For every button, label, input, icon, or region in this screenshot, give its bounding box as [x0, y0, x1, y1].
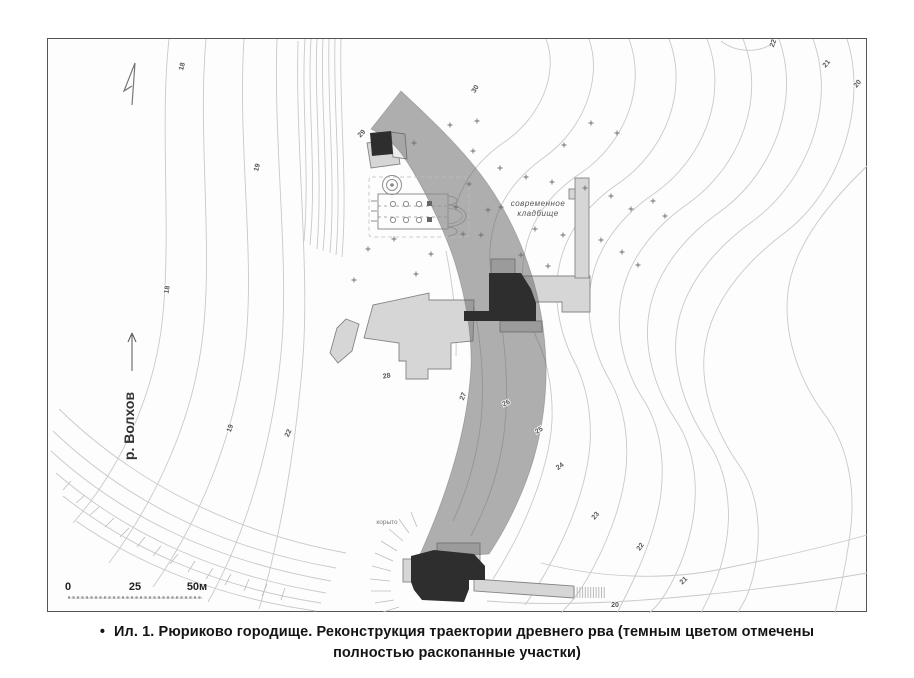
cemetery-strip: [575, 178, 589, 278]
contour-label: 19: [226, 424, 235, 434]
north-arrow-icon: [124, 63, 135, 105]
contour-label: 28: [382, 372, 391, 380]
contour-label: 22: [636, 542, 646, 552]
figure-caption: •Ил. 1. Рюриково городище. Реконструкция…: [0, 622, 914, 664]
caption-line1: •Ил. 1. Рюриково городище. Реконструкция…: [0, 622, 914, 643]
contour-label: 19: [253, 163, 262, 172]
contour-label: 18: [163, 285, 171, 294]
river-flow-arrow-icon: [128, 333, 136, 371]
contour-label: 24: [555, 462, 565, 472]
trench-strip-south: [474, 579, 574, 598]
scale-label-middle: 25: [129, 581, 141, 593]
trench-area-west: [330, 319, 359, 363]
river-label: р. Волхов: [121, 392, 137, 461]
contour-label: 22: [284, 428, 294, 438]
depression-label: корыто: [376, 519, 398, 526]
contour-label: 27: [459, 392, 468, 402]
cemetery-label-line1: современное: [511, 199, 566, 208]
scale-label-start: 0: [65, 581, 71, 593]
caption-bullet: •: [100, 624, 105, 640]
contour-label: 29: [357, 129, 368, 140]
contour-label: 18: [178, 62, 187, 71]
contour-label: 21: [679, 576, 690, 587]
trench-area-central: [364, 293, 474, 379]
site-plan-canvas: современное кладбище корыто р. Волхов 18…: [48, 39, 868, 613]
cemetery-label-line2: кладбище: [517, 209, 558, 218]
contour-label: 23: [591, 511, 601, 522]
excavated-area-south: [411, 550, 485, 602]
contour-label: 20: [611, 602, 619, 609]
contour-label: 21: [822, 59, 832, 70]
caption-line2: полностью раскопанные участки): [0, 643, 914, 664]
scale-label-end: 50м: [187, 581, 207, 593]
contour-label: 22: [769, 39, 778, 48]
cemetery-strip-notch: [569, 189, 575, 199]
caption-text-line1: Ил. 1. Рюриково городище. Реконструкция …: [114, 624, 814, 640]
scale-bar: 0 25 50м: [65, 581, 207, 598]
site-plan-figure: современное кладбище корыто р. Волхов 18…: [47, 38, 867, 612]
contour-label: 30: [471, 84, 481, 94]
excavated-area-north: [370, 131, 393, 156]
